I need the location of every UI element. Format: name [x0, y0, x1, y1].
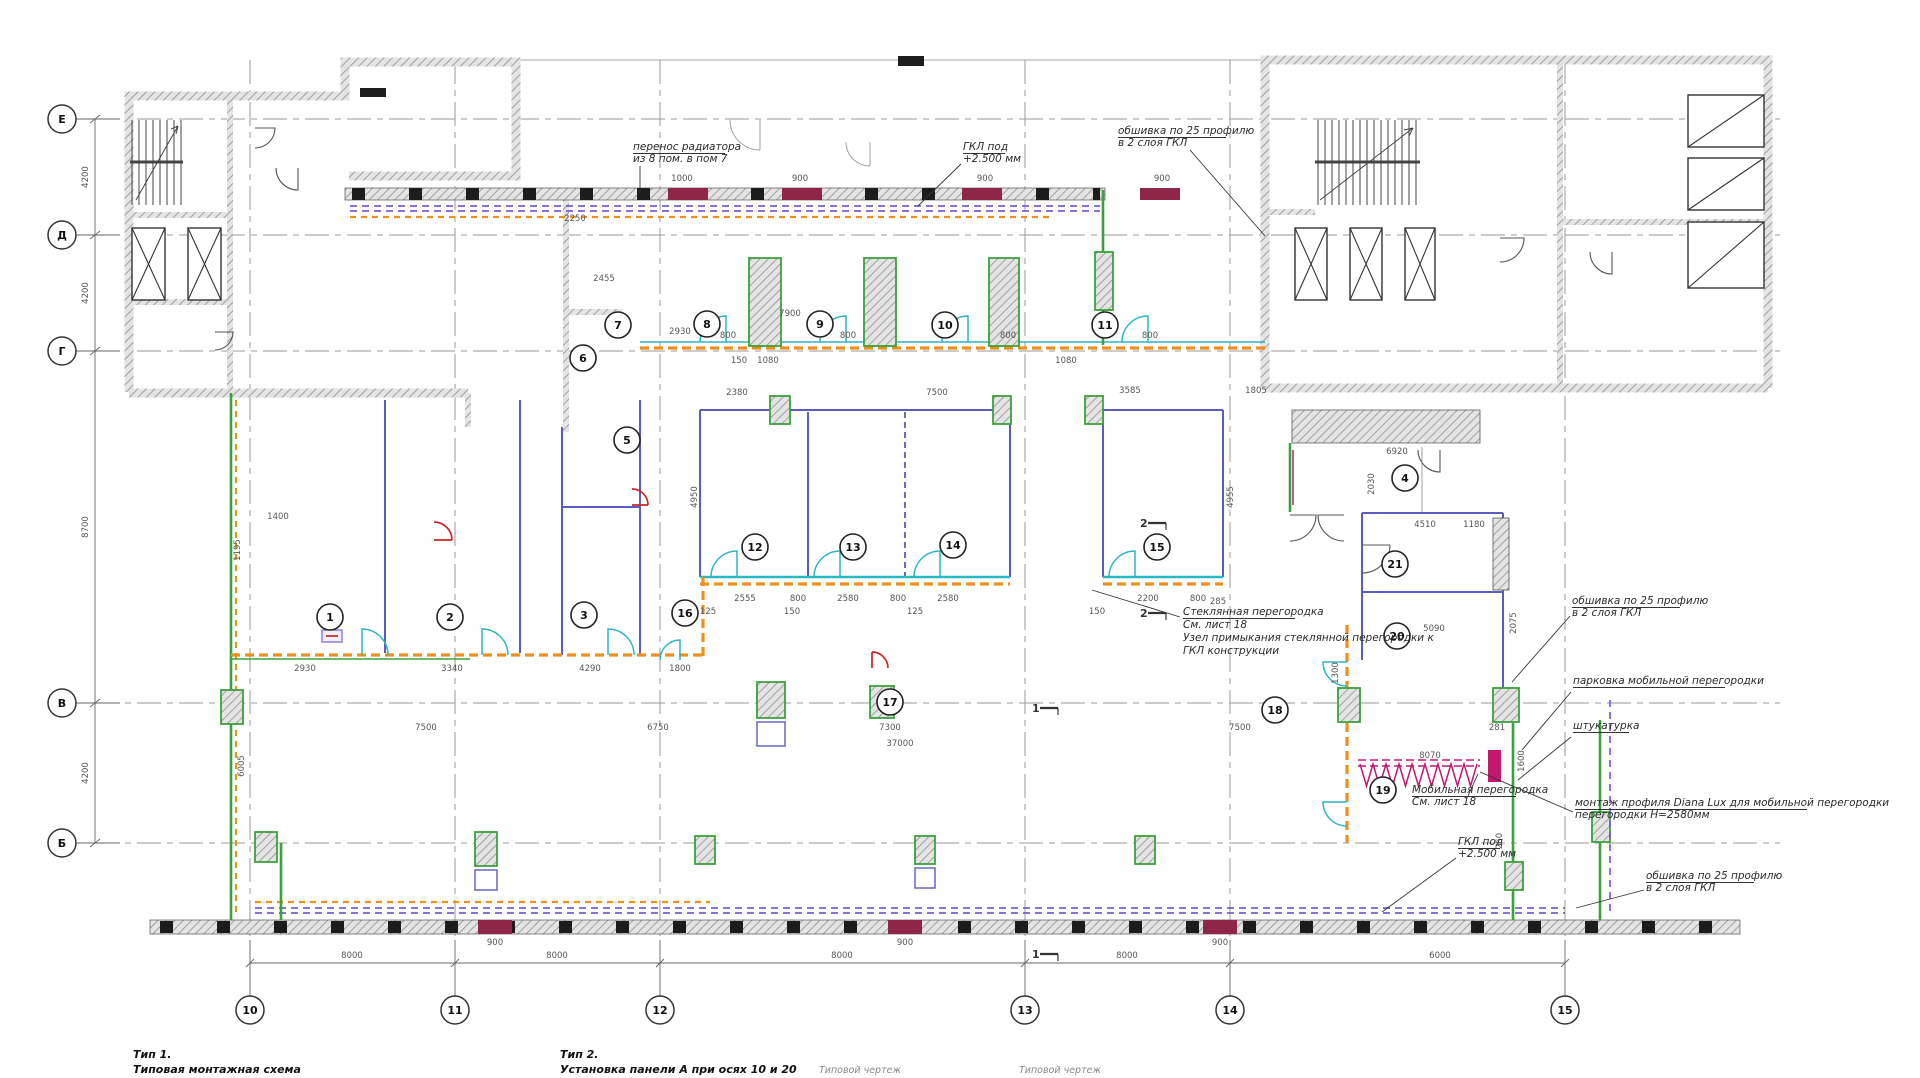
col-dim-label: 6000: [1429, 951, 1451, 961]
dimension-label: 150: [784, 607, 800, 617]
col-axis-label: 11: [447, 1004, 462, 1017]
room-number: 5: [623, 434, 631, 447]
annotation-gkl_top: ГКЛ под: [963, 141, 1008, 153]
room-number: 17: [882, 696, 897, 709]
annotation-cladding_r2: обшивка по 25 профилю: [1646, 870, 1782, 882]
footer-caption: Типовой чертеж: [1019, 1065, 1101, 1076]
section-marker: 1: [1032, 702, 1040, 715]
footer-type2-text: Установка панели А при осях 10 и 20: [560, 1063, 797, 1076]
dimension-label: 800: [840, 331, 856, 341]
dimension-label: 2580: [837, 594, 859, 604]
col-dim-label: 8000: [341, 951, 363, 961]
dimension-label: 7500: [415, 723, 437, 733]
annotation-cladding_r1: обшивка по 25 профилю: [1572, 595, 1708, 607]
dimension-label: 3340: [441, 664, 463, 674]
room-number: 2: [446, 611, 454, 624]
room-number: 19: [1375, 784, 1390, 797]
dimension-label: 2250: [564, 214, 586, 224]
floor-plan: ЕДГВБ10111213141542004200870042008000800…: [0, 0, 1920, 1078]
annotation-glass: ГКЛ конструкции: [1183, 645, 1279, 657]
dimension-label: 37000: [886, 739, 913, 749]
annotation-cladding_r1: в 2 слоя ГКЛ: [1572, 607, 1641, 619]
dimension-label: 7900: [779, 309, 801, 319]
annotation-leader: [1382, 858, 1456, 912]
footer-type2-title: Тип 2.: [560, 1048, 598, 1061]
row-dim-label: 4200: [81, 282, 91, 304]
col-axis-label: 12: [652, 1004, 667, 1017]
annotation-diana: перегородки Н=2580мм: [1575, 809, 1710, 821]
dimension-label: 800: [1000, 331, 1016, 341]
room-number: 8: [703, 318, 711, 331]
annotation-radiator: перенос радиатора: [633, 141, 741, 153]
dimension-label: 4955: [1226, 486, 1236, 508]
room-number: 13: [845, 541, 860, 554]
col-dim-label: 8000: [1116, 951, 1138, 961]
dimension-label: 800: [890, 594, 906, 604]
room-number: 9: [816, 318, 824, 331]
dimension-label: 900: [897, 938, 913, 948]
annotation-mobile: Мобильная перегородка: [1412, 784, 1548, 796]
row-axis-label: Б: [58, 837, 66, 850]
dimension-label: 800: [790, 594, 806, 604]
room-number: 6: [579, 352, 587, 365]
dimension-label: 2555: [734, 594, 756, 604]
row-axis-label: В: [58, 697, 66, 710]
dimension-label: 7500: [1229, 723, 1251, 733]
room-number: 4: [1401, 472, 1409, 485]
dimension-label: 800: [1142, 331, 1158, 341]
dimension-label: 281: [1489, 723, 1505, 733]
footer-caption: Типовой чертеж: [819, 1065, 901, 1076]
dimension-label: 1400: [267, 512, 289, 522]
col-axis-label: 13: [1017, 1004, 1032, 1017]
dimension-label: 6750: [647, 723, 669, 733]
annotation-diana: монтаж профиля Diana Lux для мобильной п…: [1575, 797, 1889, 809]
dimension-label: 800: [1190, 594, 1206, 604]
annotation-radiator: из 8 пом. в пом 7: [633, 153, 728, 165]
annotation-glass: Стеклянная перегородка: [1183, 606, 1324, 618]
col-dim-label: 8000: [546, 951, 568, 961]
dimension-label: 4950: [690, 486, 700, 508]
annotation-cladding_r2: в 2 слоя ГКЛ: [1646, 882, 1715, 894]
row-axis-label: Е: [58, 113, 66, 126]
col-dim-label: 8000: [831, 951, 853, 961]
dimension-label: 4290: [579, 664, 601, 674]
dimension-label: 1080: [757, 356, 779, 366]
dimension-label: 1195: [233, 539, 243, 561]
dimension-label: 1180: [1463, 520, 1485, 530]
dimension-label: 150: [731, 356, 747, 366]
room-number: 11: [1097, 319, 1112, 332]
dimension-label: 2200: [1137, 594, 1159, 604]
annotation-gkl_bottom: +2.500 мм: [1458, 848, 1516, 860]
dimension-label: 6920: [1386, 447, 1408, 457]
dimension-label: 2380: [726, 388, 748, 398]
row-dim-label: 8700: [81, 516, 91, 538]
row-dim-label: 4200: [81, 166, 91, 188]
annotation-leader: [1512, 616, 1570, 682]
footer-type1-title: Тип 1.: [133, 1048, 171, 1061]
annotation-mobile: См. лист 18: [1412, 796, 1476, 808]
section-marker: 1: [1032, 948, 1040, 961]
dimension-label: 2075: [1509, 612, 1519, 634]
dimension-label: 7300: [879, 723, 901, 733]
annotation-leader: [1522, 692, 1571, 750]
room-number: 7: [614, 319, 622, 332]
row-axis-label: Д: [57, 229, 67, 242]
annotation-cladding_top: обшивка по 25 профилю: [1118, 125, 1254, 137]
dimension-label: 900: [1212, 938, 1228, 948]
room-number: 18: [1267, 704, 1282, 717]
room-number: 12: [747, 541, 762, 554]
room-number: 1: [326, 611, 334, 624]
dimension-label: 125: [907, 607, 923, 617]
section-marker: 2: [1140, 517, 1148, 530]
dimension-label: 900: [487, 938, 503, 948]
dimension-label: 2455: [593, 274, 615, 284]
room-number: 10: [937, 319, 953, 332]
dimension-label: 800: [720, 331, 736, 341]
col-axis-label: 15: [1557, 1004, 1572, 1017]
dimension-label: 2930: [294, 664, 316, 674]
dimension-label: 4510: [1414, 520, 1436, 530]
annotation-glass: См. лист 18: [1183, 619, 1247, 631]
footer-type1-text: Типовая монтажная схема: [133, 1063, 301, 1076]
room-number: 15: [1149, 541, 1164, 554]
dimension-label: 2580: [937, 594, 959, 604]
room-number: 14: [945, 539, 961, 552]
walls-layer: [129, 56, 1768, 934]
dimension-label: 150: [1089, 607, 1105, 617]
row-dim-label: 4200: [81, 762, 91, 784]
dimension-label: 1600: [1517, 750, 1527, 772]
col-axis-label: 14: [1222, 1004, 1238, 1017]
dimension-label: 1080: [1055, 356, 1077, 366]
annotation-gkl_top: +2.500 мм: [963, 153, 1021, 165]
col-axis-label: 10: [242, 1004, 258, 1017]
row-axis-label: Г: [58, 345, 65, 358]
annotation-leader: [1190, 150, 1265, 236]
dimension-label: 2030: [1367, 473, 1377, 495]
dimension-label: 1800: [669, 664, 691, 674]
annotation-glass: Узел примыкания стеклянной перегородки к: [1183, 632, 1434, 644]
room-number: 3: [580, 609, 588, 622]
dimension-label: 900: [1154, 174, 1170, 184]
dimension-label: 1805: [1245, 386, 1267, 396]
annotation-parking: парковка мобильной перегородки: [1573, 675, 1764, 687]
annotation-leader: [1092, 590, 1180, 617]
dimension-label: 7500: [926, 388, 948, 398]
dimension-label: 125: [700, 607, 716, 617]
annotation-plaster: штукатурка: [1573, 720, 1640, 732]
dimension-label: 8070: [1419, 751, 1441, 761]
room-number: 16: [677, 607, 693, 620]
dimension-label: 1300: [1331, 662, 1341, 684]
room-number: 21: [1387, 558, 1402, 571]
dimension-label: 900: [792, 174, 808, 184]
dimension-label: 6005: [237, 755, 247, 777]
section-marker: 2: [1140, 607, 1148, 620]
dimension-label: 2930: [669, 327, 691, 337]
dimension-label: 900: [977, 174, 993, 184]
dimension-label: 1000: [671, 174, 693, 184]
annotation-cladding_top: в 2 слоя ГКЛ: [1118, 137, 1187, 149]
dimension-label: 3585: [1119, 386, 1141, 396]
annotation-gkl_bottom: ГКЛ под: [1458, 836, 1503, 848]
